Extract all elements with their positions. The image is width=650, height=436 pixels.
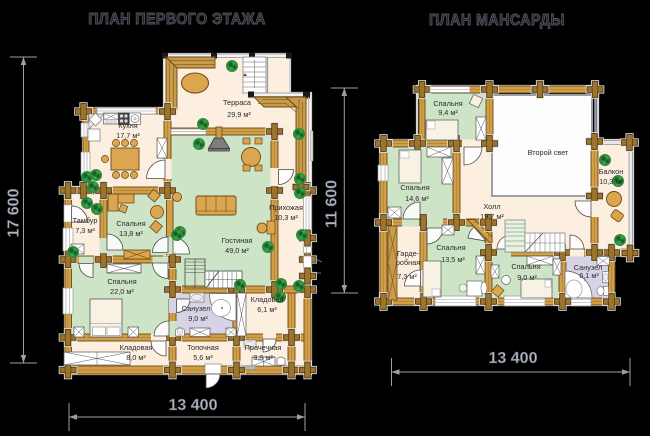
svg-text:Кухня: Кухня (118, 121, 138, 130)
svg-text:13 400: 13 400 (489, 350, 538, 367)
svg-text:17,7 м²: 17,7 м² (116, 131, 140, 140)
svg-text:Спальня: Спальня (107, 277, 136, 286)
svg-text:10,3 м²: 10,3 м² (274, 213, 298, 222)
svg-text:22,0 м²: 22,0 м² (110, 287, 134, 296)
svg-text:11 600: 11 600 (324, 180, 341, 228)
svg-text:Прихожая: Прихожая (269, 203, 303, 212)
svg-text:17 600: 17 600 (6, 188, 23, 237)
svg-text:13,5 м²: 13,5 м² (441, 255, 465, 264)
svg-text:Спальня: Спальня (116, 219, 145, 228)
svg-text:13 400: 13 400 (169, 397, 218, 414)
svg-text:Гостиная: Гостиная (222, 236, 253, 245)
svg-text:Гарде-: Гарде- (397, 249, 420, 258)
svg-text:9,0 м²: 9,0 м² (188, 314, 208, 323)
svg-text:ПЛАН МАНСАРДЫ: ПЛАН МАНСАРДЫ (429, 13, 565, 30)
svg-text:робная: робная (396, 258, 420, 267)
svg-text:Прачечная: Прачечная (245, 343, 282, 352)
svg-text:Санузел: Санузел (182, 304, 210, 313)
svg-text:7,3 м²: 7,3 м² (75, 226, 95, 235)
svg-text:19,7 м²: 19,7 м² (480, 212, 504, 221)
svg-text:14,6 м²: 14,6 м² (405, 194, 429, 203)
svg-text:3,8 м²: 3,8 м² (253, 353, 273, 362)
svg-text:Топочная: Топочная (187, 343, 219, 352)
svg-text:9,0 м²: 9,0 м² (517, 273, 537, 282)
svg-text:Спальня: Спальня (511, 262, 540, 271)
svg-text:Кладовая: Кладовая (120, 343, 153, 352)
svg-text:10,3 м²: 10,3 м² (599, 177, 623, 186)
svg-text:6,1 м²: 6,1 м² (579, 271, 599, 280)
svg-text:Спальня: Спальня (433, 99, 462, 108)
svg-text:6,1 м²: 6,1 м² (257, 305, 277, 314)
svg-text:Балкон: Балкон (599, 167, 623, 176)
svg-text:ПЛАН ПЕРВОГО ЭТАЖА: ПЛАН ПЕРВОГО ЭТАЖА (88, 12, 266, 29)
svg-text:Холл: Холл (483, 202, 500, 211)
svg-text:Спальня: Спальня (400, 183, 429, 192)
svg-text:9,4 м²: 9,4 м² (438, 108, 458, 117)
svg-text:29,9 м²: 29,9 м² (227, 110, 251, 119)
svg-text:13,8 м²: 13,8 м² (119, 229, 143, 238)
svg-text:5,6 м²: 5,6 м² (193, 353, 213, 362)
svg-text:Тамбур: Тамбур (73, 216, 98, 225)
svg-text:7,3 м²: 7,3 м² (397, 272, 417, 281)
svg-text:8,0 м²: 8,0 м² (126, 353, 146, 362)
svg-text:Терраса: Терраса (223, 98, 252, 107)
svg-text:Кладовая: Кладовая (251, 295, 284, 304)
svg-text:49,0 м²: 49,0 м² (225, 246, 249, 255)
svg-text:Второй свет: Второй свет (528, 148, 569, 157)
svg-text:Спальня: Спальня (436, 243, 465, 252)
